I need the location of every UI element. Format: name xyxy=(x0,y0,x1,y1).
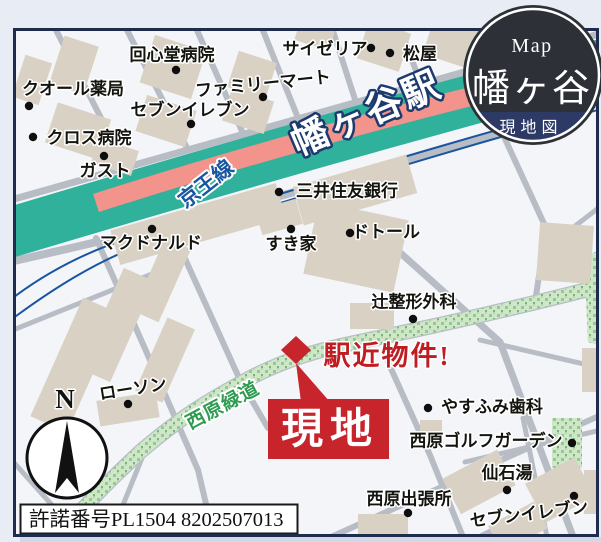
site-callout-label: 駅近物件! xyxy=(324,341,451,371)
site-map: 京王線 幡ヶ谷駅 西原緑道 回心堂病院クオール薬局サイゼリア松屋ファミリーマート… xyxy=(0,0,601,542)
poi-label: すき家 xyxy=(266,234,317,254)
poi-dot xyxy=(100,152,108,160)
compass-north-label: N xyxy=(55,384,75,414)
poi-label: 仙石湯 xyxy=(482,463,533,483)
poi-label: サイゼリア xyxy=(283,39,368,59)
poi-label: 回心堂病院 xyxy=(130,45,215,65)
poi-dot xyxy=(259,93,267,101)
poi-label: 西原出張所 xyxy=(367,489,452,509)
poi-dot xyxy=(367,44,375,52)
license-box: 許諾番号PL1504 8202507013 xyxy=(21,505,298,534)
poi-dot xyxy=(25,102,33,110)
poi-dot xyxy=(124,400,132,408)
poi-dot xyxy=(404,509,412,517)
frame-shadow xyxy=(20,537,601,542)
badge-map-type: 現地図 xyxy=(499,119,562,137)
poi-dot xyxy=(568,439,576,447)
poi-dot xyxy=(386,49,394,57)
poi-label: セブンイレブン xyxy=(131,100,250,120)
poi-label: クロス病院 xyxy=(47,128,132,148)
badge-map-label: Map xyxy=(511,35,552,57)
license-text: 許諾番号PL1504 8202507013 xyxy=(29,508,284,531)
poi-dot xyxy=(409,315,417,323)
poi-dot xyxy=(29,133,37,141)
poi-label: ドトール xyxy=(352,223,420,242)
poi-dot xyxy=(172,66,180,74)
poi-label: 辻整形外科 xyxy=(372,292,457,312)
poi-label: 三井住友銀行 xyxy=(296,181,398,201)
poi-dot xyxy=(287,225,295,233)
poi-dot xyxy=(275,188,283,196)
poi-label: 松屋 xyxy=(403,44,437,64)
poi-label: クオール薬局 xyxy=(22,80,124,99)
poi-dot xyxy=(148,225,156,233)
poi-label: やすふみ歯科 xyxy=(441,397,543,417)
poi-dot xyxy=(424,404,432,412)
poi-label: マクドナルド xyxy=(100,234,202,253)
poi-dot xyxy=(187,120,195,128)
poi-label: 西原ゴルフガーデン xyxy=(410,431,563,451)
poi-label: ガスト xyxy=(80,162,131,181)
badge-area-name: 幡ヶ谷 xyxy=(472,68,592,110)
site-label: 現地 xyxy=(281,406,379,453)
poi-dot xyxy=(503,486,511,494)
